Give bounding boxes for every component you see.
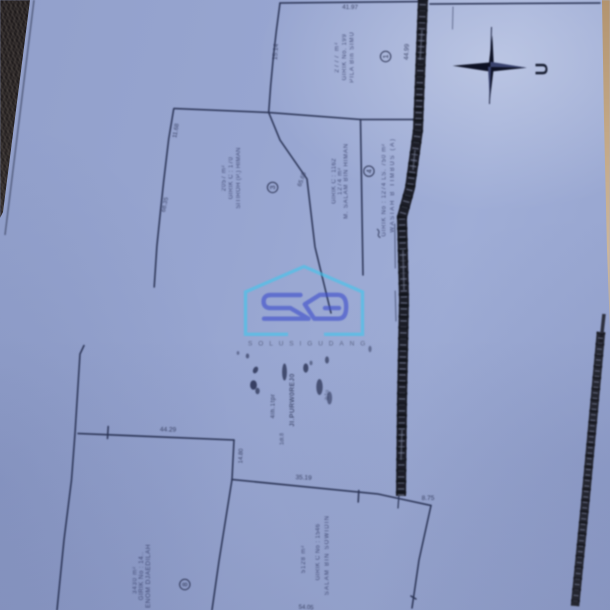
- svg-text:1dt.8: 1dt.8: [280, 433, 286, 445]
- svg-text:14.80: 14.80: [238, 448, 245, 464]
- svg-text:1: 1: [383, 54, 390, 58]
- svg-text:SOLUSIGUDANG: SOLUSIGUDANG: [248, 341, 371, 348]
- svg-text:35.19: 35.19: [295, 474, 312, 482]
- svg-text:4: 4: [366, 169, 373, 173]
- svg-text:U: U: [532, 63, 552, 76]
- svg-text:M. SALAM BIN HIMAN: M. SALAM BIN HIMAN: [344, 143, 350, 219]
- svg-text:44.99: 44.99: [403, 43, 411, 60]
- svg-text:2057 m²: 2057 m²: [222, 165, 228, 191]
- svg-text:44.29: 44.29: [160, 426, 177, 434]
- svg-text:54.05: 54.05: [298, 605, 314, 610]
- svg-text:PILA Bin SIMU: PILA Bin SIMU: [350, 31, 356, 82]
- svg-text:11.68: 11.68: [172, 122, 181, 138]
- svg-text:8.75: 8.75: [422, 495, 435, 502]
- svg-text:2777 m²: 2777 m²: [335, 41, 341, 72]
- svg-text:GIRIK C No : 1546: GIRIK C No : 1546: [316, 523, 322, 580]
- svg-text:JI.PURW0REJ0: JI.PURW0REJ0: [289, 373, 296, 426]
- svg-text:3: 3: [270, 185, 277, 189]
- svg-text:41.97: 41.97: [342, 4, 358, 12]
- svg-text:GIRIK No : 1274 LS. 750 m²: GIRIK No : 1274 LS. 750 m²: [382, 143, 388, 236]
- svg-text:ib1u: ib1u: [325, 390, 331, 400]
- svg-text:8: 8: [182, 582, 189, 586]
- svg-text:4lh.1tpr: 4lh.1tpr: [271, 394, 277, 419]
- svg-text:ENOM DJAEDILAH: ENOM DJAEDILAH: [145, 544, 152, 608]
- svg-text:SITIROH (P.) HIMAN: SITIROH (P.) HIMAN: [236, 147, 242, 208]
- svg-text:GIRIK No : 14..: GIRIK No : 14..: [138, 552, 145, 601]
- svg-text:WASIAH B TIMBUS (A): WASIAH B TIMBUS (A): [390, 137, 396, 232]
- svg-text:GIRIK No. 199: GIRIK No. 199: [342, 34, 348, 81]
- svg-text:5128 m²: 5128 m²: [301, 545, 307, 573]
- svg-text:15.14: 15.14: [272, 43, 280, 60]
- svg-text:GIRIK C : 170: GIRIK C : 170: [229, 156, 235, 199]
- svg-text:SALAM BIN SOWIDIN: SALAM BIN SOWIDIN: [325, 515, 331, 595]
